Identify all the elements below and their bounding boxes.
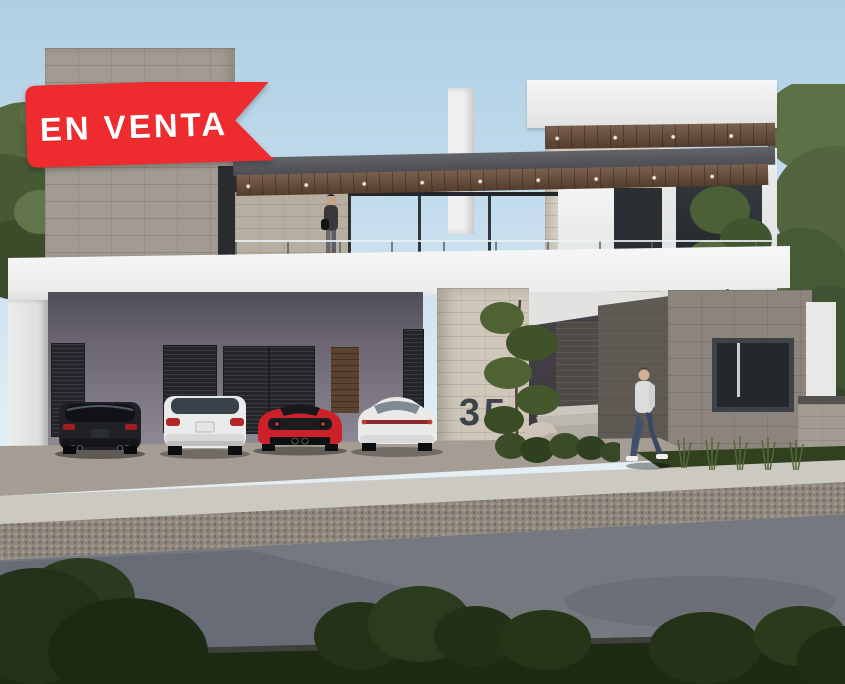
ornamental-grasses bbox=[672, 418, 817, 473]
red-sports-car bbox=[250, 394, 350, 456]
dark-suv-car bbox=[53, 384, 147, 460]
fence-cap bbox=[798, 396, 845, 404]
bush bbox=[499, 610, 591, 670]
entry-bushes bbox=[495, 406, 620, 468]
roof-wood-soffit bbox=[545, 123, 775, 149]
roof-parapet bbox=[527, 80, 777, 128]
white-sedan-car bbox=[348, 390, 446, 458]
white-suv-car bbox=[158, 380, 252, 460]
side-window bbox=[712, 338, 794, 412]
bush bbox=[649, 612, 761, 684]
render-scene: 35 bbox=[0, 0, 845, 684]
man-walking bbox=[620, 366, 676, 472]
ribbon-label: EN VENTA bbox=[35, 97, 233, 157]
side-window-mullion bbox=[737, 343, 740, 397]
